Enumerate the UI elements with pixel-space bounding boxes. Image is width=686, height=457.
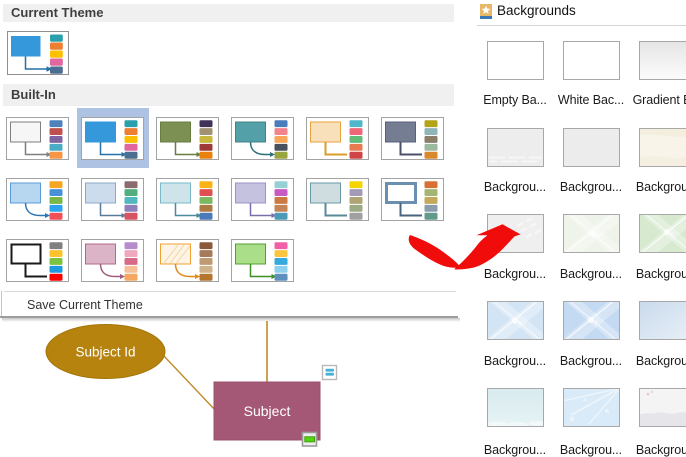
svg-text:Subject Id: Subject Id — [75, 345, 135, 360]
svg-text:Subject: Subject — [244, 403, 291, 419]
